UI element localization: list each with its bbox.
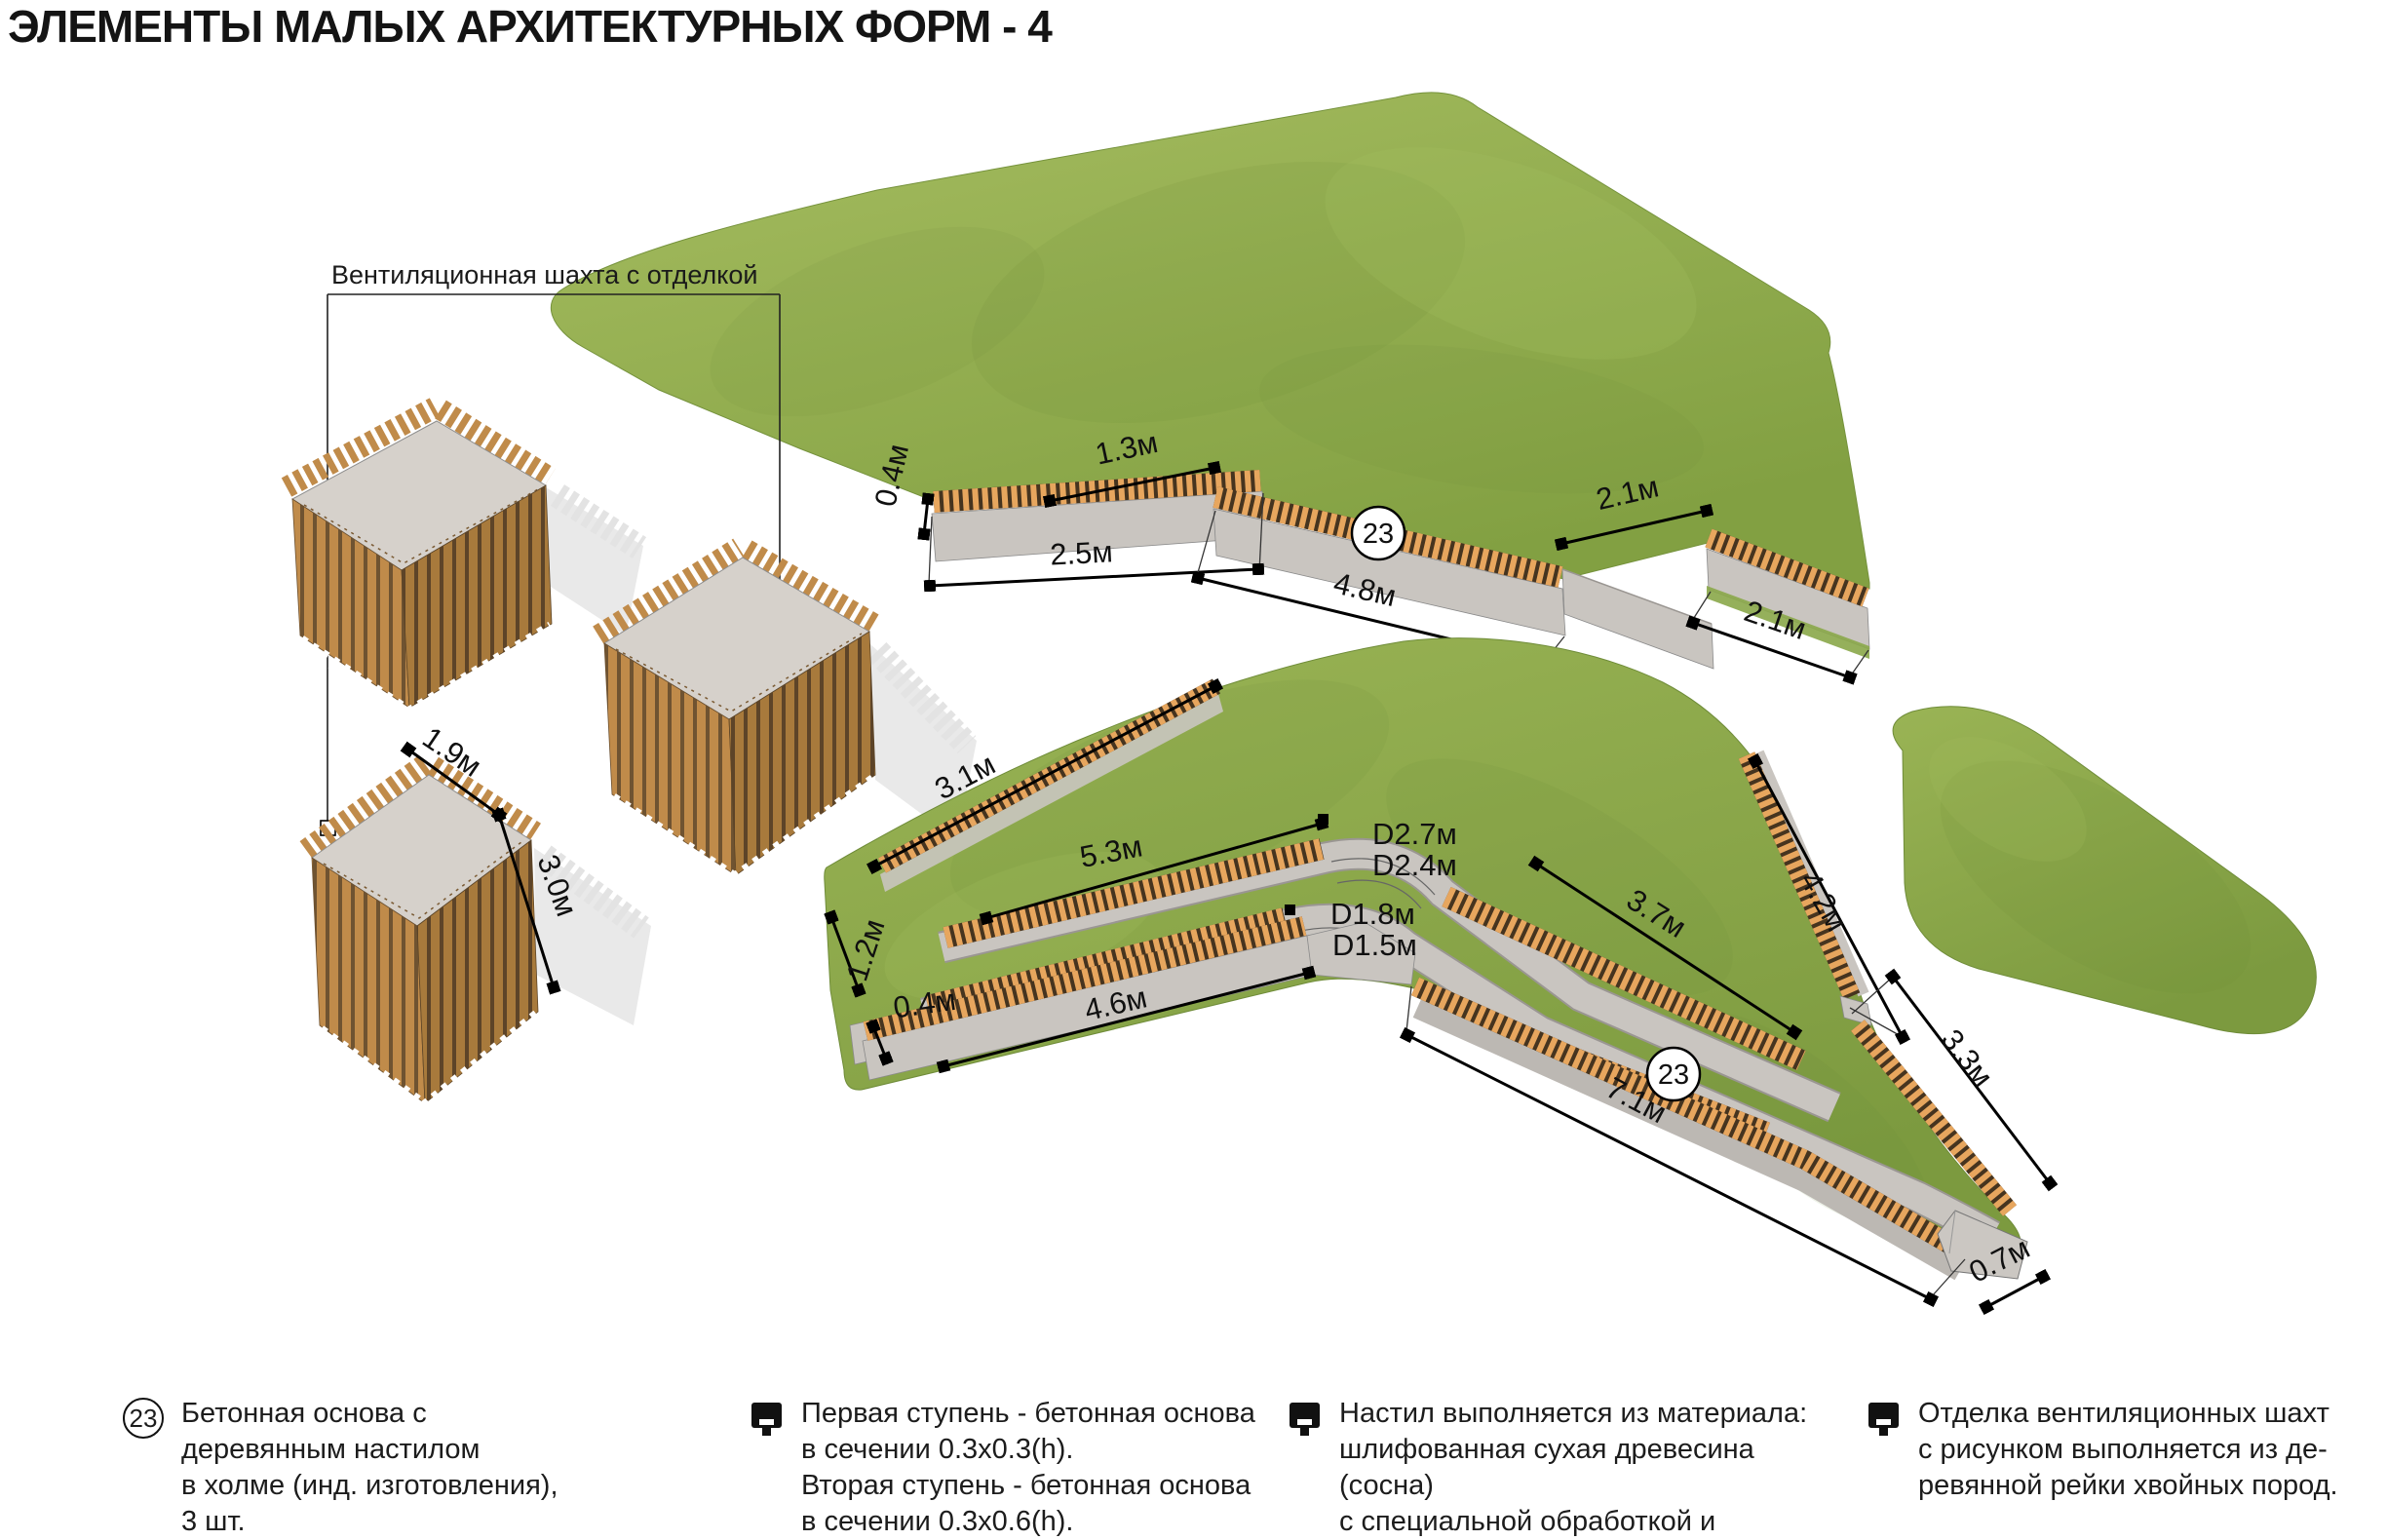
dim-2-5m: 2.5м xyxy=(1049,534,1113,571)
legend-text-steps: Первая ступень - бетонная основа в сечен… xyxy=(801,1396,1255,1540)
dim-3-3m: 3.3м xyxy=(1935,1022,2000,1093)
legend-item-shaft-finish: Отделка вентиляционных шахт с рисунком в… xyxy=(1867,1396,2374,1504)
side-mound xyxy=(1893,707,2316,1041)
ventilation-shaft-box-bottom xyxy=(306,764,651,1107)
illustration: 23 0.4м 1.3м 2.5м 4.8м 2.1м 2 xyxy=(0,0,2387,1540)
legend-text-decking: Настил выполняется из материала: шлифова… xyxy=(1339,1396,1834,1540)
sheet: ЭЛЕМЕНТЫ МАЛЫХ АРХИТЕКТУРНЫХ ФОРМ - 4 xyxy=(0,0,2387,1540)
legend-callout-23-number: 23 xyxy=(130,1404,158,1434)
callout-23-top-label: 23 xyxy=(1363,519,1394,550)
dim-D2-7m: D2.7м xyxy=(1372,817,1457,851)
legend-text-concrete-base: Бетонная основа с деревянным настилом в … xyxy=(181,1396,571,1540)
legend-item-steps: Первая ступень - бетонная основа в сечен… xyxy=(751,1396,1257,1540)
step-marker-icon xyxy=(1867,1402,1901,1439)
dim-D1-8m: D1.8м xyxy=(1330,897,1415,931)
legend-item-concrete-base: 23 Бетонная основа с деревянным настилом… xyxy=(123,1396,571,1540)
bottom-hill: 23 3.1м 5.3м D2.7м D2.4м D1.8м D1.5м 1.2… xyxy=(825,631,2050,1307)
legend-callout-23: 23 xyxy=(123,1398,164,1439)
ventilation-shaft-box-top xyxy=(287,407,643,713)
legend-text-shaft-finish: Отделка вентиляционных шахт с рисунком в… xyxy=(1918,1396,2338,1504)
dim-D1-5m: D1.5м xyxy=(1332,928,1417,962)
step-marker-icon xyxy=(1289,1402,1322,1439)
dim-D2-4m: D2.4м xyxy=(1372,848,1457,882)
shaft-label: Вентиляционная шахта с отделкой xyxy=(331,260,757,289)
step-marker-icon xyxy=(751,1402,784,1439)
legend-item-decking: Настил выполняется из материала: шлифова… xyxy=(1289,1396,1834,1540)
callout-23-bottom-label: 23 xyxy=(1658,1059,1689,1091)
